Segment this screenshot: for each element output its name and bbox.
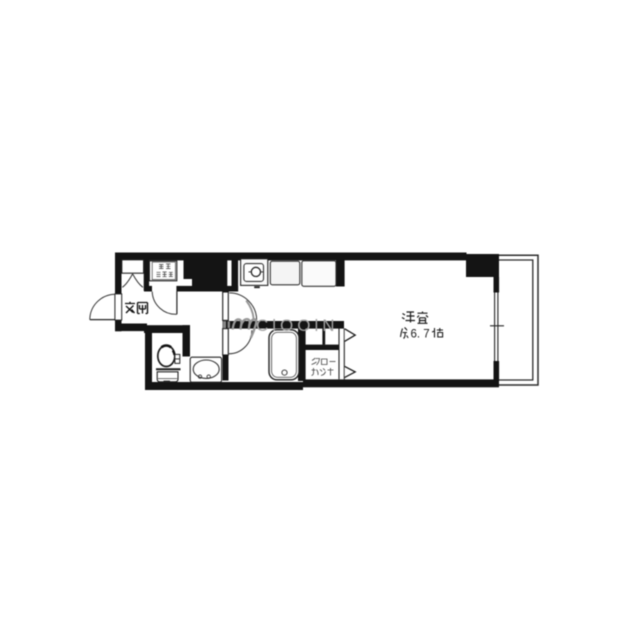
svg-text:6. 7: 6. 7 [411, 329, 430, 341]
